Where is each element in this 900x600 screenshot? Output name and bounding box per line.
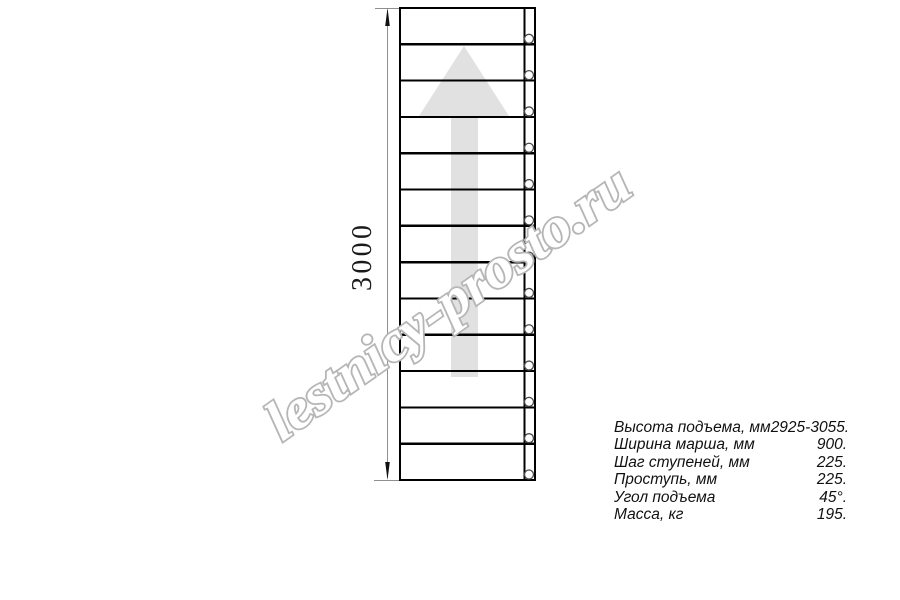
spec-value: 225.: [817, 471, 847, 488]
spec-row-step-pitch: Шаг ступеней, мм 225.: [614, 454, 847, 471]
spec-label: Шаг ступеней, мм: [614, 454, 750, 471]
bolt-circle: [525, 143, 534, 152]
dimension-arrowhead-down: [385, 462, 390, 480]
bolt-circle: [525, 361, 534, 370]
spec-row-tread: Проступь, мм 225.: [614, 471, 847, 488]
spec-table: Высота подъема, мм 2925-3055. Ширина мар…: [614, 419, 847, 524]
spec-value: 195.: [817, 506, 847, 523]
spec-label: Масса, кг: [614, 506, 683, 523]
bolt-circle: [525, 325, 534, 334]
spec-value: 45°.: [819, 489, 847, 506]
spec-label: Проступь, мм: [614, 471, 717, 488]
spec-row-angle: Угол подъема 45°.: [614, 489, 847, 506]
spec-value: 225.: [817, 454, 847, 471]
spec-label: Угол подъема: [614, 489, 715, 506]
spec-row-mass: Масса, кг 195.: [614, 506, 847, 523]
bolt-circle: [525, 434, 534, 443]
bolt-circle: [525, 470, 534, 479]
spec-value: 900.: [817, 436, 847, 453]
technical-drawing-page: 3000 lestnicy-prosto.ru Высота подъема, …: [0, 0, 900, 600]
spec-value: 2925-3055.: [771, 419, 849, 436]
bolt-circle: [525, 107, 534, 116]
bolt-circle: [525, 34, 534, 43]
spec-row-width: Ширина марша, мм 900.: [614, 436, 847, 453]
dimension-arrowhead-up: [385, 8, 390, 26]
dimension-text: 3000: [347, 225, 378, 291]
spec-label: Ширина марша, мм: [614, 436, 755, 453]
bolt-circle: [525, 288, 534, 297]
spec-label: Высота подъема, мм: [614, 419, 771, 436]
bolt-circle: [525, 397, 534, 406]
bolt-circle: [525, 71, 534, 80]
bolt-circle: [525, 180, 534, 189]
spec-row-height: Высота подъема, мм 2925-3055.: [614, 419, 847, 436]
